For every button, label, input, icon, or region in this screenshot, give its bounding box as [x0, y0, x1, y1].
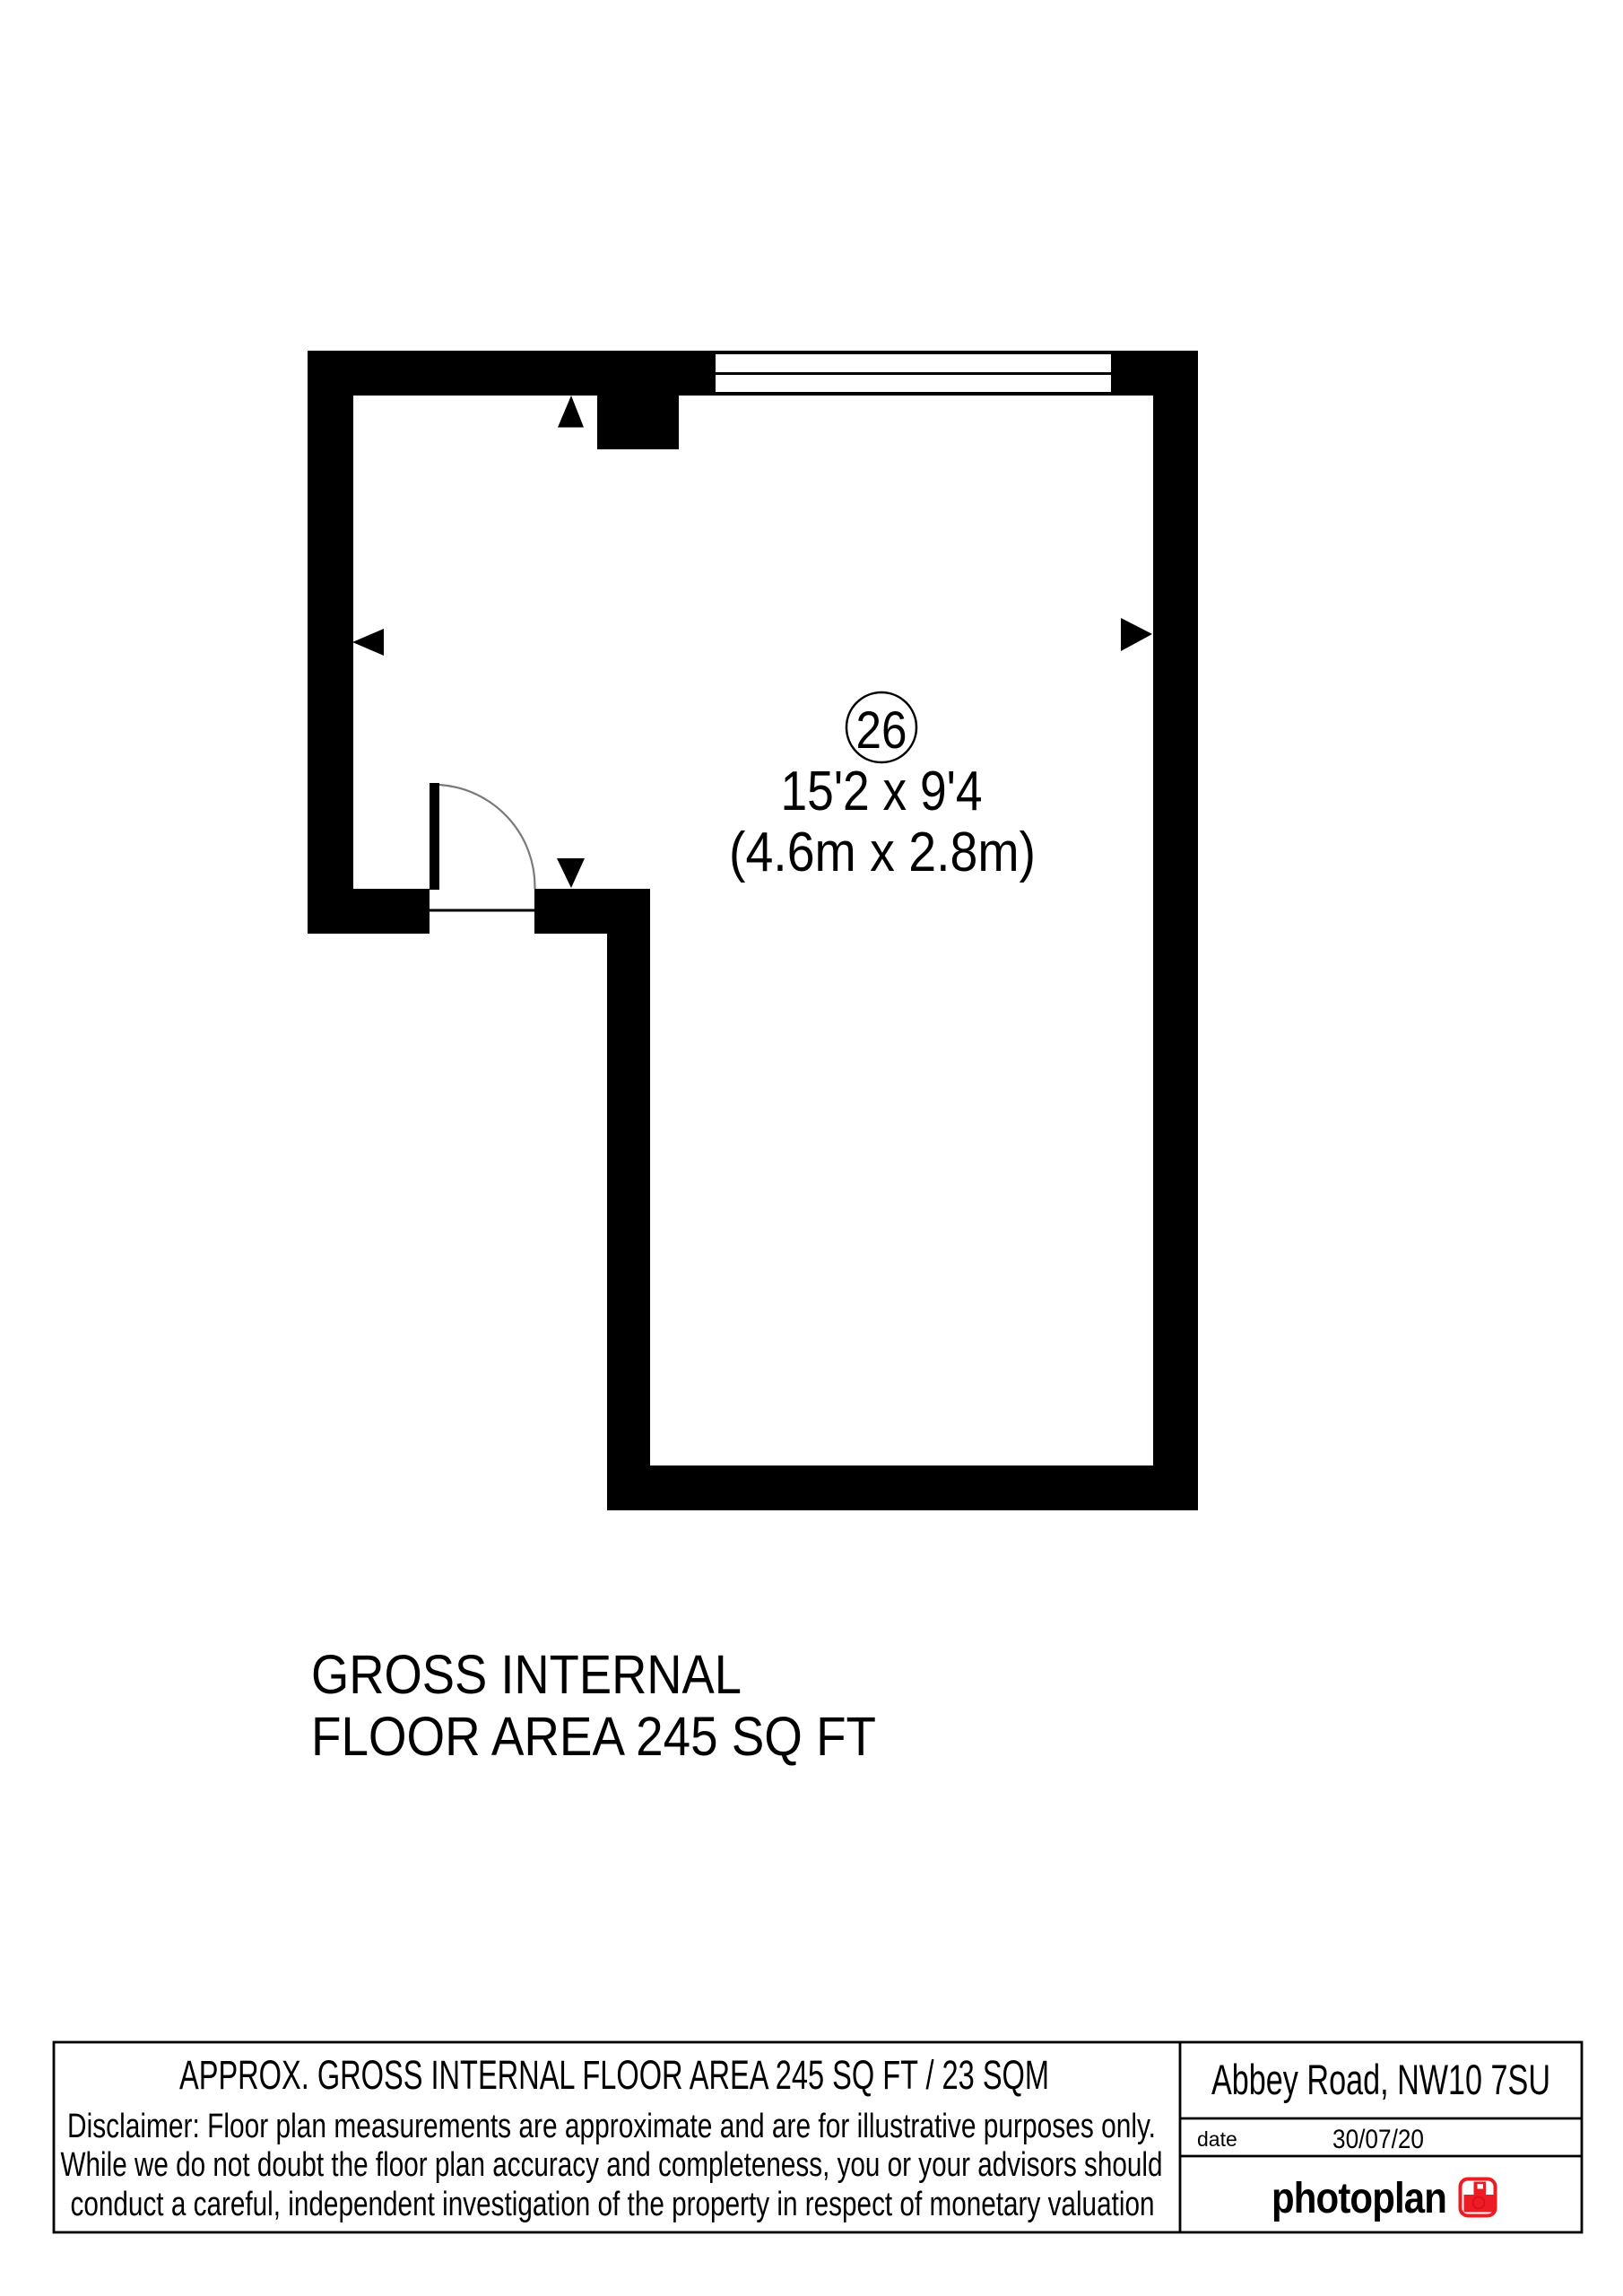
svg-text:photoplan: photoplan — [1271, 2175, 1446, 2222]
svg-text:conduct a careful, independent: conduct a careful, independent investiga… — [71, 2186, 1155, 2223]
svg-text:FLOOR AREA 245 SQ FT: FLOOR AREA 245 SQ FT — [311, 1706, 876, 1767]
svg-text:15'2 x 9'4: 15'2 x 9'4 — [781, 761, 983, 822]
svg-text:GROSS INTERNAL: GROSS INTERNAL — [311, 1644, 742, 1705]
svg-text:26: 26 — [856, 701, 907, 760]
svg-text:(4.6m x 2.8m): (4.6m x 2.8m) — [729, 822, 1036, 883]
svg-text:APPROX. GROSS INTERNAL FLOOR A: APPROX. GROSS INTERNAL FLOOR AREA 245 SQ… — [179, 2052, 1049, 2098]
svg-text:Disclaimer: Floor plan measure: Disclaimer: Floor plan measurements are … — [67, 2108, 1156, 2145]
svg-text:30/07/20: 30/07/20 — [1332, 2125, 1424, 2154]
svg-text:date: date — [1197, 2127, 1237, 2151]
svg-text:While we do not doubt the floo: While we do not doubt the floor plan acc… — [61, 2146, 1163, 2184]
svg-text:Abbey Road, NW10 7SU: Abbey Road, NW10 7SU — [1211, 2056, 1550, 2103]
